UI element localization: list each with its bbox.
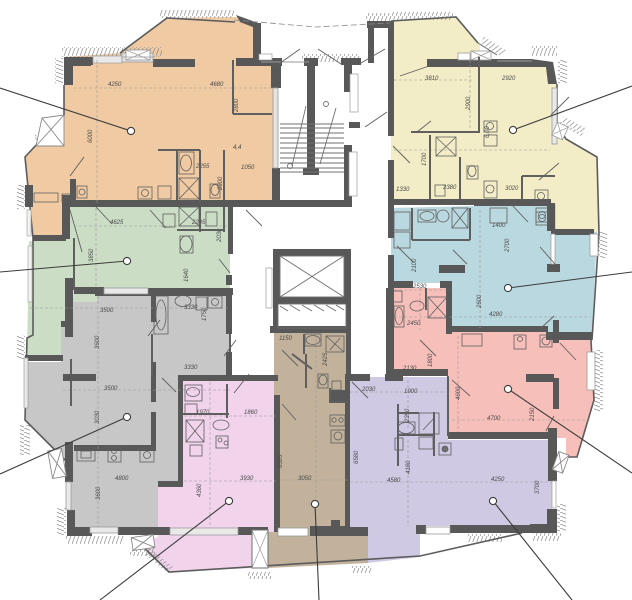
svg-text:2425: 2425: [323, 352, 329, 367]
svg-text:3330: 3330: [184, 365, 198, 371]
svg-text:1150: 1150: [279, 336, 293, 342]
svg-text:2350: 2350: [405, 408, 411, 423]
svg-text:4250: 4250: [108, 82, 122, 88]
svg-text:3810: 3810: [425, 76, 439, 82]
svg-text:2900: 2900: [466, 96, 472, 111]
svg-text:3500: 3500: [100, 308, 114, 314]
svg-text:1800: 1800: [428, 353, 434, 367]
svg-text:2255: 2255: [195, 164, 210, 170]
svg-text:1640: 1640: [184, 268, 190, 282]
svg-text:4360: 4360: [197, 483, 203, 497]
svg-text:2920: 2920: [501, 76, 516, 82]
svg-text:3700: 3700: [535, 480, 541, 494]
svg-text:4580: 4580: [387, 478, 401, 484]
svg-text:2030: 2030: [361, 387, 376, 393]
svg-text:6000: 6000: [88, 129, 94, 143]
svg-text:2130: 2130: [402, 366, 417, 372]
svg-text:1400: 1400: [492, 223, 506, 229]
svg-text:4600: 4600: [456, 386, 462, 400]
svg-text:2450: 2450: [406, 321, 421, 327]
svg-text:1700: 1700: [422, 152, 428, 166]
svg-text:4700: 4700: [487, 416, 501, 422]
svg-text:2700: 2700: [505, 238, 511, 253]
svg-text:4280: 4280: [489, 312, 503, 318]
svg-text:6305: 6305: [278, 454, 284, 468]
svg-text:2800: 2800: [234, 98, 240, 113]
svg-text:4250: 4250: [491, 477, 505, 483]
svg-text:3930: 3930: [240, 476, 254, 482]
svg-text:4680: 4680: [210, 82, 224, 88]
svg-text:2530: 2530: [412, 284, 427, 290]
svg-text:2100: 2100: [412, 258, 418, 273]
svg-text:3020: 3020: [505, 186, 519, 192]
svg-text:1050: 1050: [241, 165, 255, 171]
svg-text:3600: 3600: [95, 335, 101, 349]
svg-text:3500: 3500: [104, 386, 118, 392]
svg-text:1330: 1330: [396, 187, 410, 193]
svg-text:4625: 4625: [110, 220, 124, 226]
svg-text:1860: 1860: [244, 410, 258, 416]
svg-text:4,4: 4,4: [233, 145, 242, 151]
svg-text:3850: 3850: [89, 248, 95, 262]
svg-text:3050: 3050: [298, 476, 312, 482]
svg-text:3030: 3030: [95, 410, 101, 424]
svg-text:4800: 4800: [115, 476, 129, 482]
svg-text:2600: 2600: [477, 294, 483, 309]
svg-text:6580: 6580: [354, 450, 360, 464]
svg-text:4180: 4180: [406, 460, 412, 474]
svg-text:3600: 3600: [96, 486, 102, 500]
svg-text:1900: 1900: [404, 389, 418, 395]
svg-text:2150: 2150: [530, 407, 536, 422]
svg-text:2380: 2380: [442, 185, 457, 191]
